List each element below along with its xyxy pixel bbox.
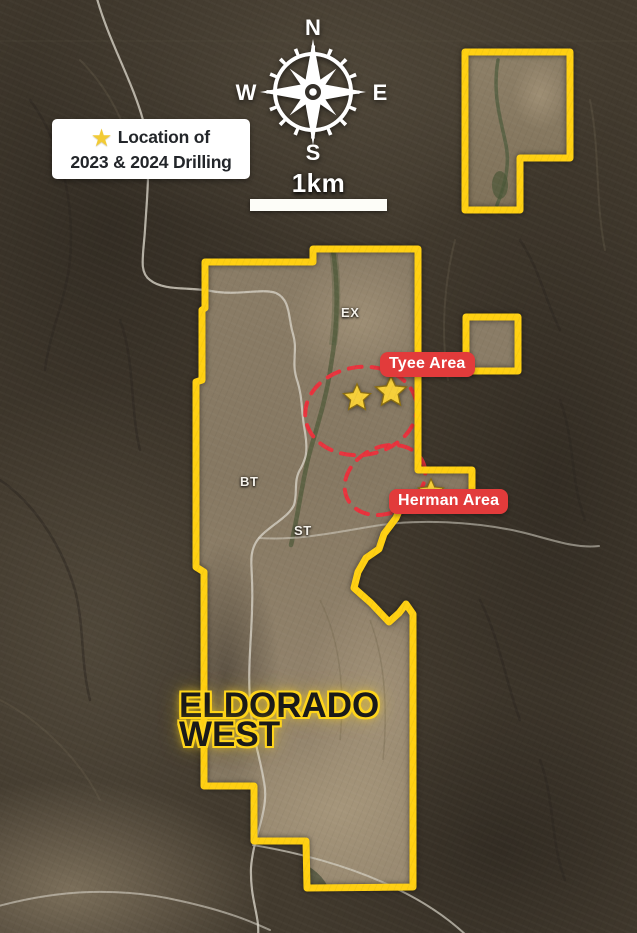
- legend-line-2: 2023 & 2024 Drilling: [60, 152, 242, 173]
- compass-north-label: N: [305, 15, 321, 40]
- scale-bar-label: 1km: [250, 170, 387, 196]
- herman-area-label: Herman Area: [389, 489, 508, 514]
- drill-star-icon: ★: [92, 127, 111, 150]
- zone-label-ex: EX: [341, 305, 360, 320]
- legend: ★Location of 2023 & 2024 Drilling: [52, 119, 250, 179]
- compass-rose-icon: N S W E: [233, 10, 397, 174]
- legend-line-1: ★Location of: [60, 126, 242, 152]
- compass-south-label: S: [306, 140, 321, 165]
- legend-text-1: Location of: [118, 127, 210, 147]
- property-title: ELDORADO WEST: [179, 691, 379, 749]
- compass-east-label: E: [373, 80, 388, 105]
- compass-west-label: W: [236, 80, 257, 105]
- scale-bar: 1km: [250, 170, 387, 211]
- tyee-area-label: Tyee Area: [380, 352, 475, 377]
- claim-map: N S W E 1km ★Location of 2023 & 2024 Dri…: [0, 0, 637, 933]
- zone-label-st: ST: [294, 523, 312, 538]
- scale-bar-rule: [250, 199, 387, 211]
- zone-label-bt: BT: [240, 474, 259, 489]
